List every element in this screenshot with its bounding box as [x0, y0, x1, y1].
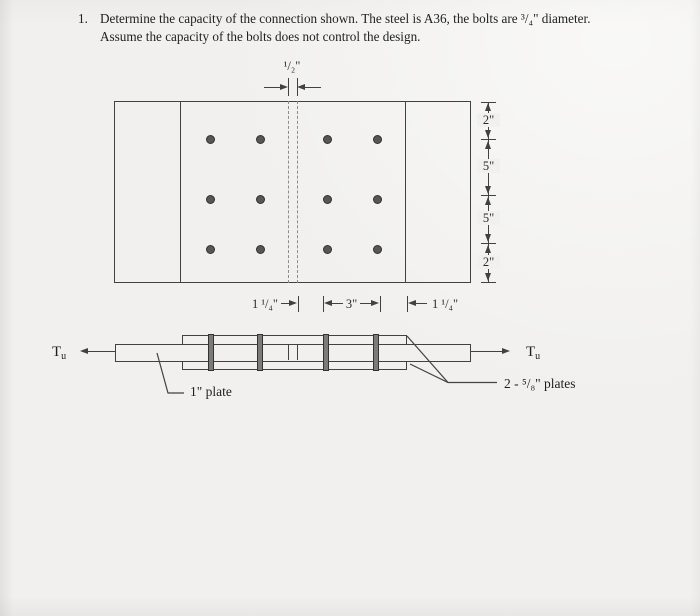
bolt-shank: [208, 334, 215, 371]
problem-line-1: Determine the capacity of the connection…: [100, 10, 591, 27]
dim-extension-tick: [288, 78, 289, 96]
force-symbol: T: [52, 344, 61, 360]
plan-plate-outline: [114, 101, 471, 283]
bolt-hole: [256, 135, 265, 144]
dim-label-1-quarter: 1 ¹/₄": [432, 297, 492, 311]
plan-joint-line-left: [288, 101, 289, 283]
bolt-hole: [373, 195, 382, 204]
bolt-hole: [323, 245, 332, 254]
dim-tick: [380, 296, 381, 312]
scanned-page: 1. Determine the capacity of the connect…: [0, 0, 700, 616]
dim-arrow-right-icon: [289, 300, 297, 306]
bolt-hole: [256, 195, 265, 204]
problem-number: 1.: [78, 10, 88, 27]
dim-line: [303, 87, 321, 88]
force-symbol: T: [526, 344, 535, 360]
bolt-hole: [373, 135, 382, 144]
bolt-hole: [206, 245, 215, 254]
plan-splice-plate-right-edge: [405, 101, 406, 283]
force-label-right: Tu: [526, 344, 540, 365]
dim-label-5in: 5": [477, 211, 500, 225]
dim-arrow-down-icon: [485, 234, 491, 242]
dim-label-2in: 2": [477, 255, 500, 269]
force-subscript: u: [535, 351, 540, 362]
splice-plates-label: 2 - ⁵/₈" plates: [504, 376, 576, 392]
dim-arrow-up-icon: [485, 103, 491, 111]
dim-label-2in: 2": [477, 113, 500, 127]
dim-tick: [481, 282, 496, 283]
bolt-shank: [257, 334, 264, 371]
dim-arrow-up-icon: [485, 141, 491, 149]
bolt-hole: [323, 195, 332, 204]
bolt-shank: [373, 334, 380, 371]
bolt-hole: [323, 135, 332, 144]
dim-arrow-up-icon: [485, 245, 491, 253]
dim-tick: [298, 296, 299, 312]
dim-arrow-down-icon: [485, 130, 491, 138]
dim-arrow-up-icon: [485, 197, 491, 205]
dim-label-half-inch: ¹/₂": [270, 59, 314, 73]
dim-line: [415, 303, 427, 304]
force-arrow-right-icon: [502, 348, 510, 354]
elev-joint-line-right: [297, 345, 298, 360]
problem-line-2: Assume the capacity of the bolts does no…: [100, 28, 420, 45]
elev-main-plate: [115, 344, 471, 362]
elev-joint-line-left: [288, 345, 289, 360]
plan-splice-plate-left-edge: [180, 101, 181, 283]
plan-joint-line-right: [297, 101, 298, 283]
dim-line: [331, 303, 343, 304]
main-plate-label: 1" plate: [190, 384, 232, 400]
dim-arrow-right-icon: [280, 84, 288, 90]
dim-label-1-quarter: 1 ¹/₄": [236, 297, 278, 311]
bolt-hole: [373, 245, 382, 254]
bolt-shank: [323, 334, 330, 371]
force-arrow-shaft: [471, 351, 502, 352]
dim-arrow-down-icon: [485, 273, 491, 281]
dim-label-5in: 5": [477, 159, 500, 173]
dim-arrow-right-icon: [371, 300, 379, 306]
force-label-left: Tu: [52, 344, 66, 365]
bolt-hole: [206, 195, 215, 204]
bolt-hole: [256, 245, 265, 254]
bolt-hole: [206, 135, 215, 144]
force-arrow-shaft: [87, 351, 115, 352]
dim-label-3in: 3": [344, 297, 359, 311]
dim-arrow-down-icon: [485, 186, 491, 194]
force-subscript: u: [61, 351, 66, 362]
